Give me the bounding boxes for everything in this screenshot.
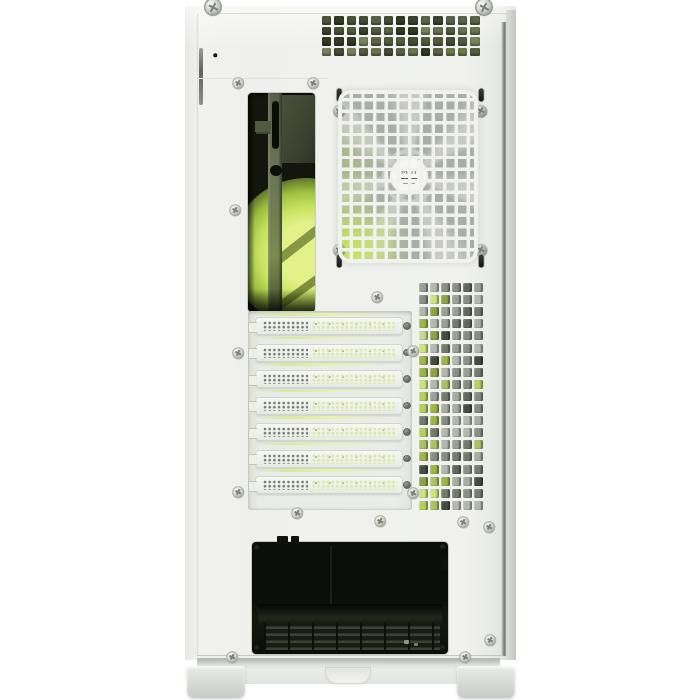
screw-hole [440, 645, 446, 651]
thumbscrew [206, 0, 221, 15]
screw-hole [254, 545, 260, 551]
thumbscrew [477, 0, 492, 15]
psu-cutout-notch [441, 559, 448, 570]
rear-exhaust-fan-grille: MSI [338, 90, 478, 263]
panel-screw [408, 346, 418, 356]
keyhole-slot [479, 89, 484, 102]
keyhole-slot [479, 255, 484, 268]
panel-screw [230, 205, 240, 215]
panel-screw [372, 292, 382, 302]
panel-screw [375, 516, 385, 526]
panel-screw [292, 508, 302, 518]
psu-cutout-notch [291, 536, 299, 544]
screw-hole [254, 645, 260, 651]
panel-screw [233, 348, 243, 358]
panel-screw [233, 487, 243, 497]
product-photo-scene: MSI [0, 0, 700, 700]
panel-screw [227, 652, 237, 662]
psu-cutout-notch [277, 536, 288, 544]
panel-screw [458, 517, 468, 527]
fan-grille-mesh [338, 90, 478, 263]
panel-screw [408, 488, 418, 498]
panel-screw [460, 652, 470, 662]
screw-hole [213, 53, 217, 57]
panel-screw [484, 522, 494, 532]
panel-screw [308, 78, 318, 88]
panel-screw [233, 78, 243, 88]
screw-hole [440, 544, 446, 550]
panel-screw [485, 635, 495, 645]
